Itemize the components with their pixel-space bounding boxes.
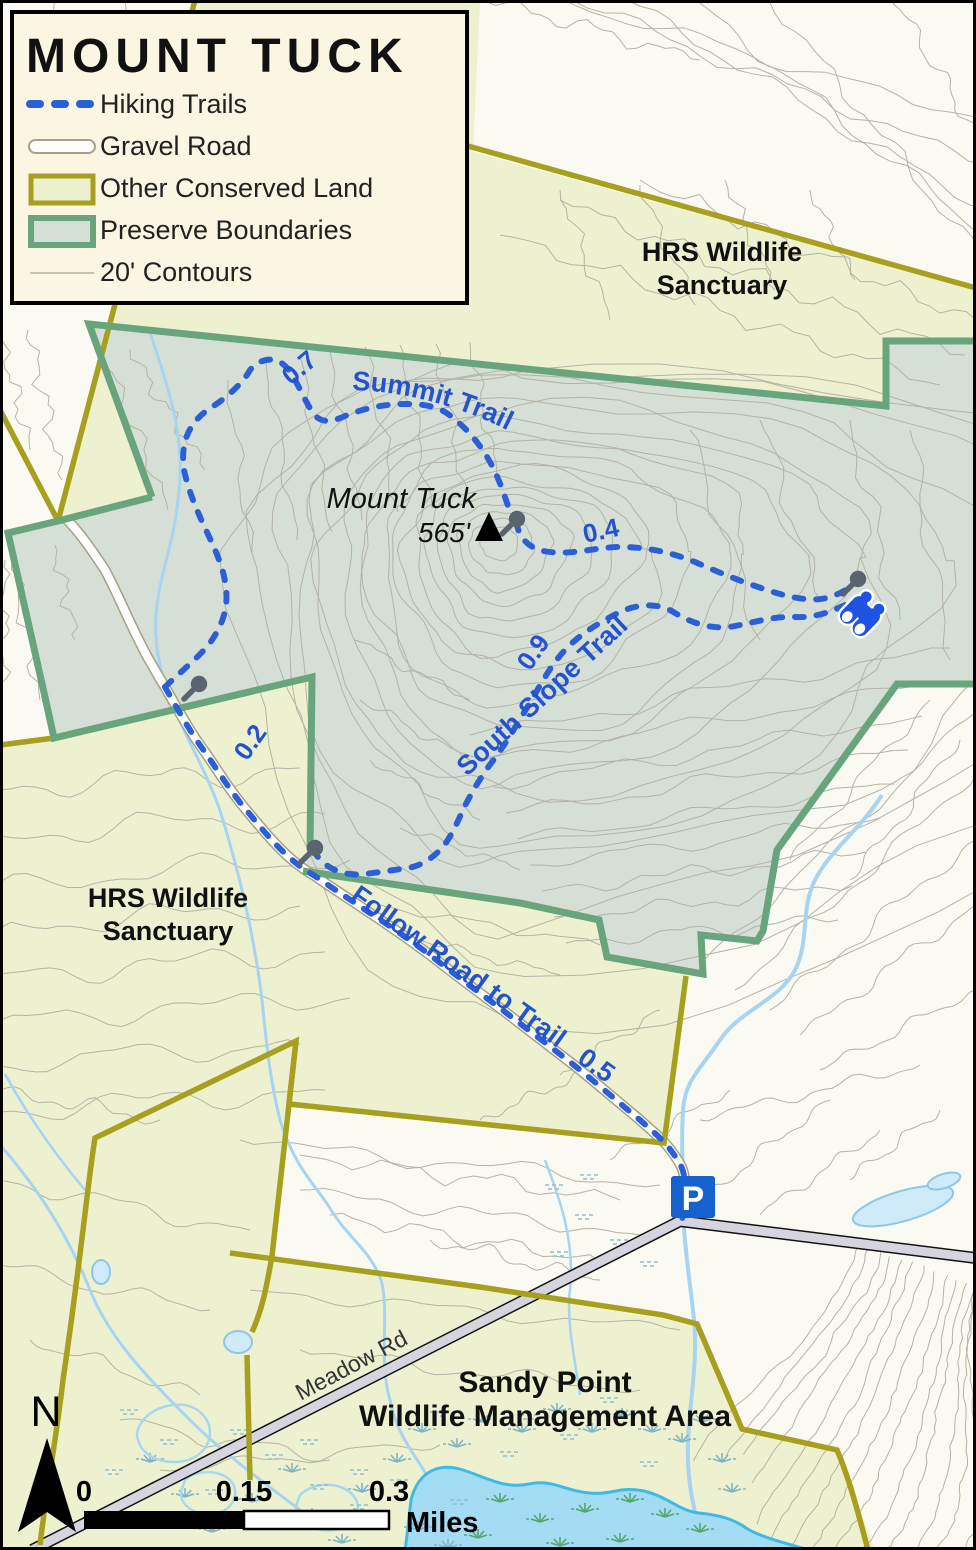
- svg-text:Wildlife Management Area: Wildlife Management Area: [359, 1400, 731, 1433]
- svg-text:Hiking Trails: Hiking Trails: [100, 89, 247, 119]
- svg-text:Miles: Miles: [406, 1507, 479, 1539]
- svg-text:0: 0: [76, 1476, 92, 1508]
- svg-text:Gravel Road: Gravel Road: [100, 131, 252, 161]
- svg-text:Other Conserved Land: Other Conserved Land: [100, 173, 373, 203]
- svg-text:0.15: 0.15: [216, 1476, 272, 1508]
- svg-text:Sanctuary: Sanctuary: [657, 270, 788, 300]
- svg-text:0.3: 0.3: [369, 1476, 409, 1508]
- svg-text:MOUNT TUCK: MOUNT TUCK: [26, 30, 409, 83]
- svg-text:Sandy Point: Sandy Point: [458, 1366, 631, 1399]
- svg-text:P: P: [682, 1180, 705, 1218]
- svg-text:Sanctuary: Sanctuary: [103, 916, 234, 946]
- svg-text:565': 565': [418, 517, 472, 548]
- svg-text:N: N: [30, 1388, 61, 1436]
- svg-text:HRS Wildlife: HRS Wildlife: [88, 883, 248, 913]
- svg-text:HRS Wildlife: HRS Wildlife: [642, 237, 802, 267]
- svg-text:20' Contours: 20' Contours: [100, 257, 252, 287]
- svg-text:Mount Tuck: Mount Tuck: [327, 483, 478, 515]
- svg-text:Preserve Boundaries: Preserve Boundaries: [100, 215, 352, 245]
